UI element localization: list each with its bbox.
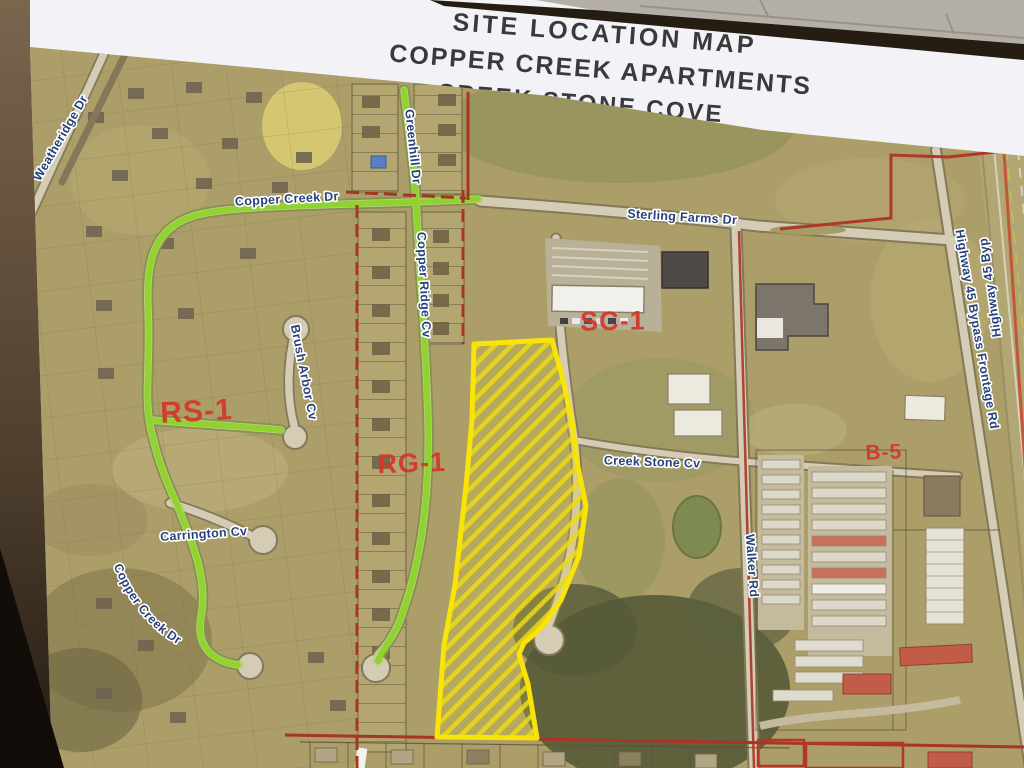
photo-of-projected-slide: SITE LOCATION MAP COPPER CREEK APARTMENT… (0, 0, 1024, 768)
zone-label-rg1: RG-1 (377, 447, 447, 479)
zone-label-rs1: RS-1 (160, 393, 234, 430)
dark-roof-building (662, 252, 708, 288)
zone-label-sc1: SC-1 (580, 305, 646, 336)
zone-label-b5: B-5 (865, 440, 903, 464)
blue-roof-building (371, 156, 386, 168)
pond (673, 496, 721, 558)
